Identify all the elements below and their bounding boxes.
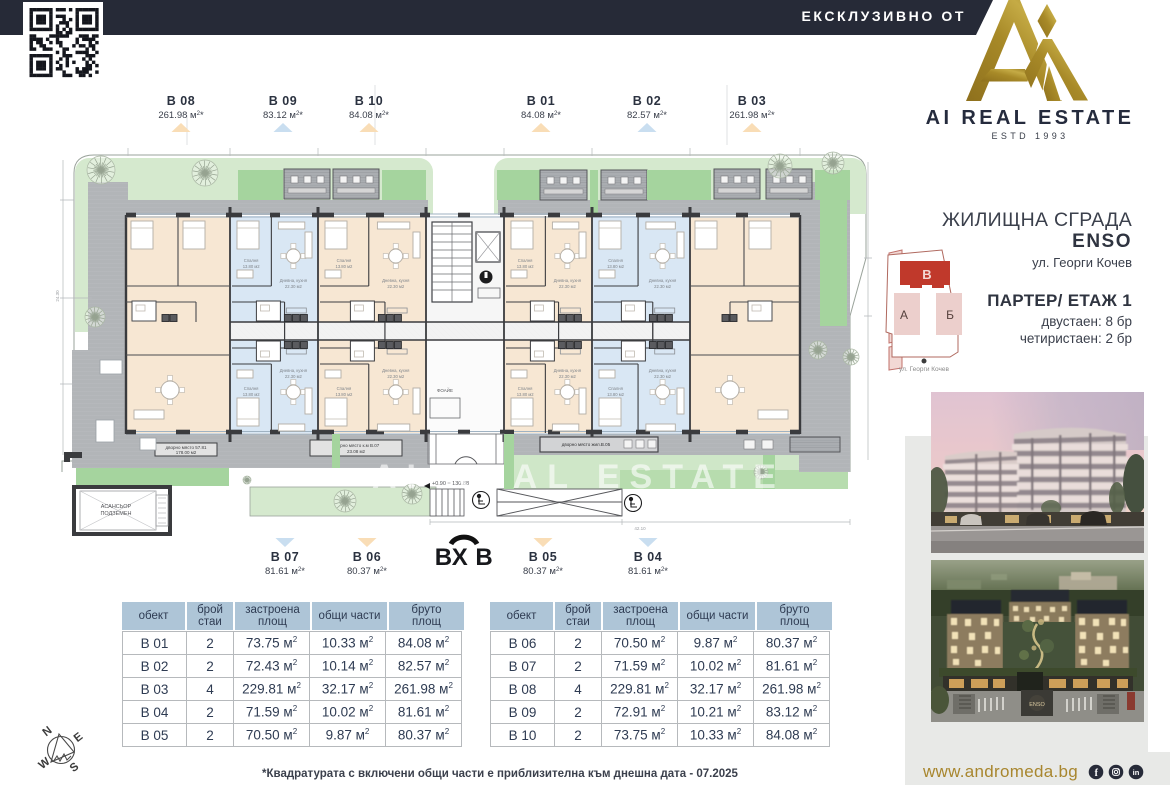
svg-text:Дневна, кухня: Дневна, кухня	[280, 278, 307, 283]
svg-text:А: А	[900, 308, 908, 322]
svg-text:22.30 м2: 22.30 м2	[387, 284, 405, 289]
svg-text:В 04: В 04	[634, 550, 662, 564]
svg-text:13.80 м2: 13.80 м2	[335, 392, 353, 397]
svg-text:22.30 м2: 22.30 м2	[559, 284, 577, 289]
svg-text:82.57 м2*: 82.57 м2*	[627, 110, 667, 121]
svg-text:ФОАЙЕ: ФОАЙЕ	[437, 386, 453, 393]
svg-text:Спалня: Спалня	[337, 258, 352, 263]
svg-text:E: E	[72, 730, 86, 744]
svg-text:Спалня: Спалня	[608, 258, 623, 263]
svg-text:Дневна, кухня: Дневна, кухня	[649, 368, 676, 373]
svg-text:В: В	[922, 267, 931, 282]
svg-text:В 05: В 05	[529, 550, 557, 564]
svg-text:Спалня: Спалня	[244, 386, 259, 391]
svg-text:24.30: 24.30	[55, 290, 60, 302]
svg-text:Дневна, кухня: Дневна, кухня	[280, 368, 307, 373]
svg-text:261.98 м2*: 261.98 м2*	[729, 110, 775, 121]
svg-text:261.98 м2*: 261.98 м2*	[158, 110, 204, 121]
svg-text:84.08 м2*: 84.08 м2*	[349, 110, 389, 121]
svg-text:Спалня: Спалня	[244, 258, 259, 263]
svg-text:В 02: В 02	[633, 94, 661, 108]
svg-text:178.00 м2: 178.00 м2	[176, 450, 197, 455]
svg-text:80.37 м2*: 80.37 м2*	[523, 566, 563, 577]
svg-text:дворно място жил.В.05: дворно място жил.В.05	[562, 442, 611, 447]
svg-text:В 10: В 10	[355, 94, 383, 108]
svg-text:ПОДЗЕМЕН: ПОДЗЕМЕН	[100, 511, 131, 517]
svg-text:13.80 м2: 13.80 м2	[243, 392, 261, 397]
svg-text:22.30 м2: 22.30 м2	[559, 374, 577, 379]
svg-text:Дневна, кухня: Дневна, кухня	[554, 368, 581, 373]
svg-text:Дневна, кухня: Дневна, кухня	[649, 278, 676, 283]
svg-text:22.30 м2: 22.30 м2	[387, 374, 405, 379]
svg-text:S: S	[68, 760, 82, 774]
svg-text:В 03: В 03	[738, 94, 766, 108]
svg-text:Б: Б	[946, 308, 954, 322]
svg-text:В 08: В 08	[167, 94, 195, 108]
svg-text:84.08 м2*: 84.08 м2*	[521, 110, 561, 121]
svg-text:13.80 м2: 13.80 м2	[517, 392, 535, 397]
svg-text:Дневна, кухня: Дневна, кухня	[554, 278, 581, 283]
svg-text:В 07: В 07	[271, 550, 299, 564]
svg-text:22.30 м2: 22.30 м2	[285, 284, 303, 289]
svg-text:В 06: В 06	[353, 550, 381, 564]
svg-text:13.80 м2: 13.80 м2	[607, 392, 625, 397]
svg-text:13.80 м2: 13.80 м2	[335, 264, 353, 269]
svg-text:ENSO: ENSO	[1029, 702, 1045, 708]
svg-text:АСАНСЬОР: АСАНСЬОР	[101, 504, 132, 510]
svg-text:ВХ В: ВХ В	[435, 544, 493, 571]
svg-text:Спалня: Спалня	[518, 386, 533, 391]
svg-text:В 01: В 01	[527, 94, 555, 108]
svg-text:80.37 м2*: 80.37 м2*	[347, 566, 387, 577]
svg-text:Спалня: Спалня	[337, 386, 352, 391]
svg-text:13.80 м2: 13.80 м2	[517, 264, 535, 269]
svg-text:Дневна, кухня: Дневна, кухня	[382, 368, 409, 373]
svg-text:13.80 м2: 13.80 м2	[607, 264, 625, 269]
svg-text:23.08 м2: 23.08 м2	[347, 449, 366, 454]
svg-text:Спалня: Спалня	[608, 386, 623, 391]
svg-text:81.61 м2*: 81.61 м2*	[265, 566, 305, 577]
svg-text:81.61 м2*: 81.61 м2*	[628, 566, 668, 577]
svg-text:in: in	[1133, 768, 1140, 777]
svg-text:N: N	[41, 725, 55, 740]
svg-text:ул. Георги Кочев: ул. Георги Кочев	[899, 366, 950, 373]
svg-text:22.30 м2: 22.30 м2	[654, 374, 672, 379]
svg-text:В 09: В 09	[269, 94, 297, 108]
svg-text:22.30 м2: 22.30 м2	[654, 284, 672, 289]
svg-text:83.12 м2*: 83.12 м2*	[263, 110, 303, 121]
svg-text:22.30 м2: 22.30 м2	[285, 374, 303, 379]
svg-text:13.80 м2: 13.80 м2	[243, 264, 261, 269]
svg-text:Спалня: Спалня	[518, 258, 533, 263]
svg-text:Дневна, кухня: Дневна, кухня	[382, 278, 409, 283]
